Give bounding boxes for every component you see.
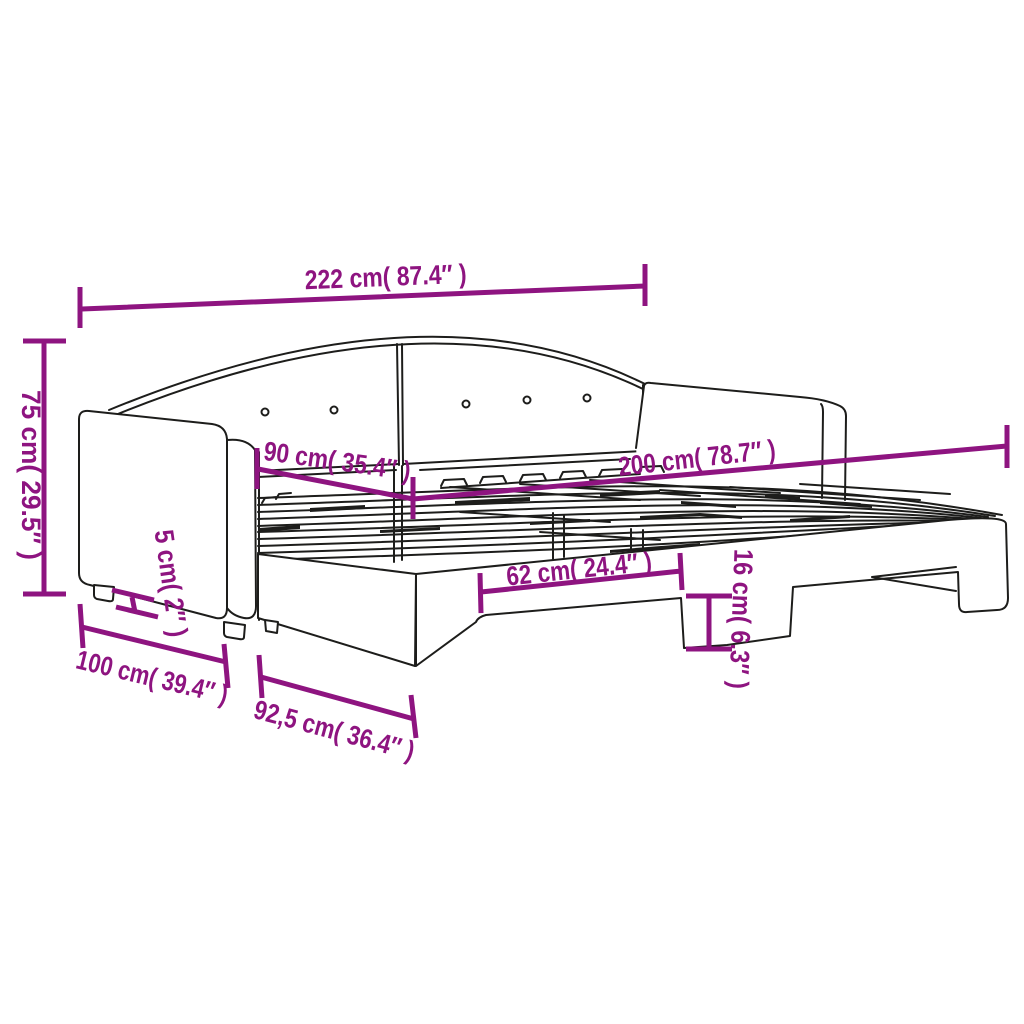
svg-text:92,5 cm( 36.4″ ): 92,5 cm( 36.4″ ) [251, 694, 418, 766]
svg-text:222 cm( 87.4″ ): 222 cm( 87.4″ ) [304, 259, 467, 295]
svg-text:100 cm( 39.4″ ): 100 cm( 39.4″ ) [73, 645, 231, 710]
svg-text:75 cm( 29.5″ ): 75 cm( 29.5″ ) [16, 390, 46, 560]
svg-text:16 cm( 6.3″ ): 16 cm( 6.3″ ) [724, 549, 759, 690]
svg-text:90 cm( 35.4″ ): 90 cm( 35.4″ ) [262, 436, 413, 486]
